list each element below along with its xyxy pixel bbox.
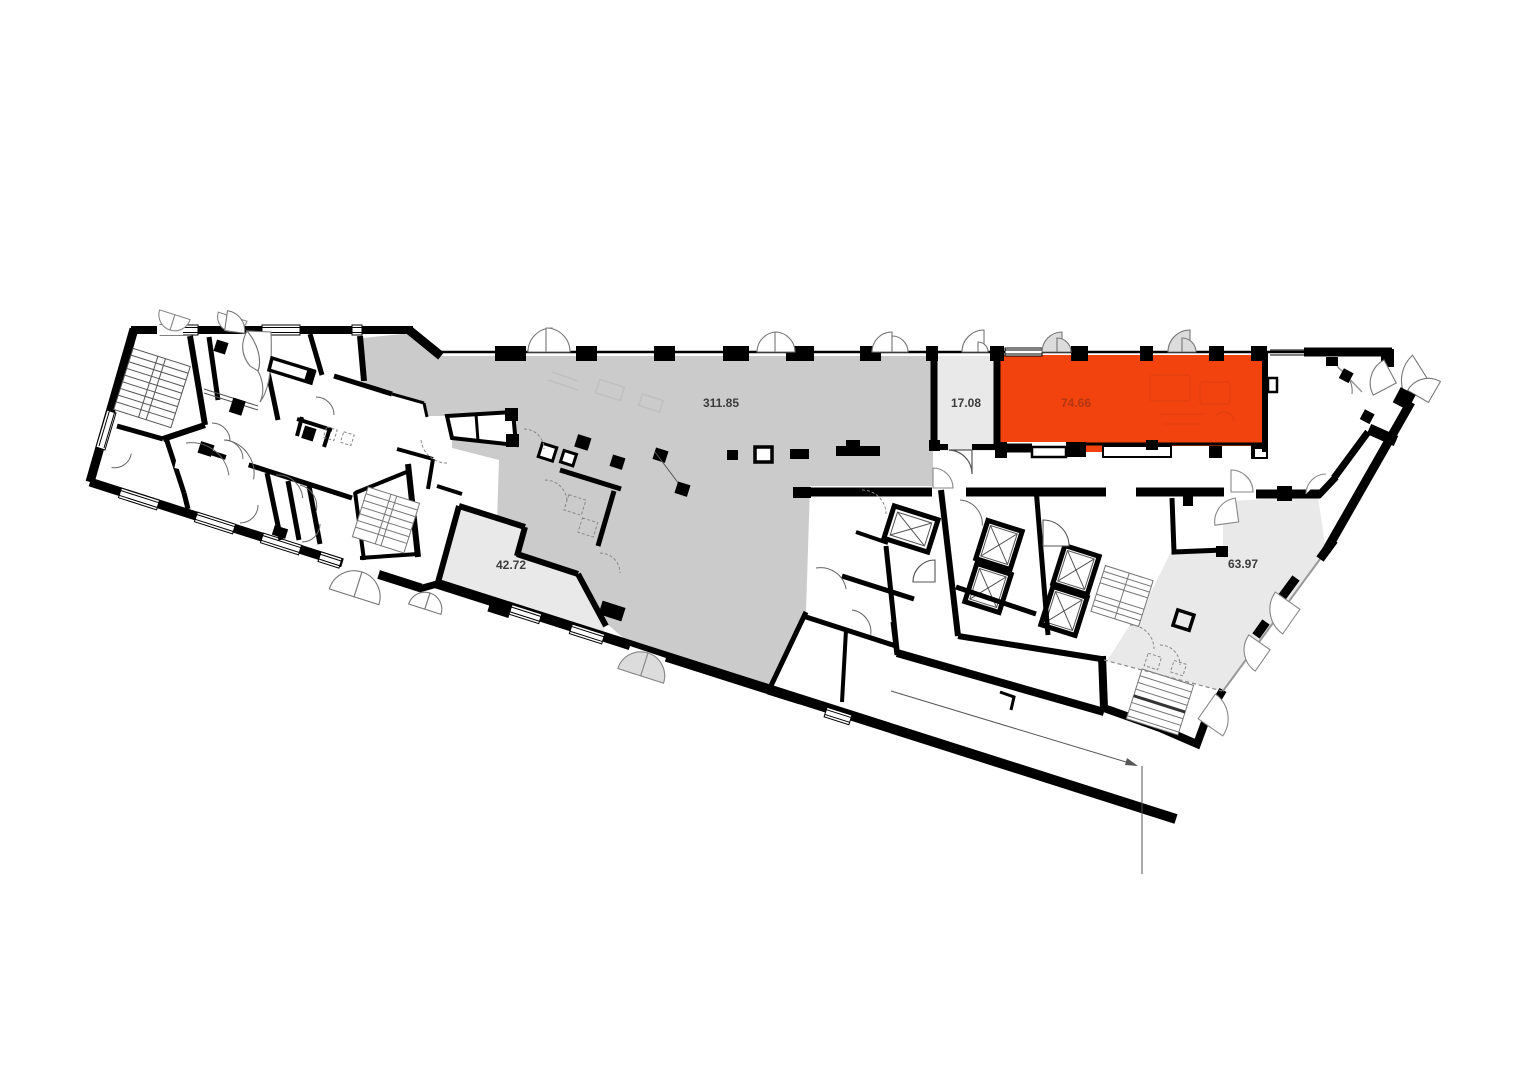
svg-text:74.66: 74.66	[1061, 396, 1091, 410]
svg-text:17.08: 17.08	[951, 396, 981, 410]
svg-text:63.97: 63.97	[1228, 557, 1258, 571]
svg-text:311.85: 311.85	[703, 396, 739, 410]
svg-text:42.72: 42.72	[496, 558, 526, 572]
